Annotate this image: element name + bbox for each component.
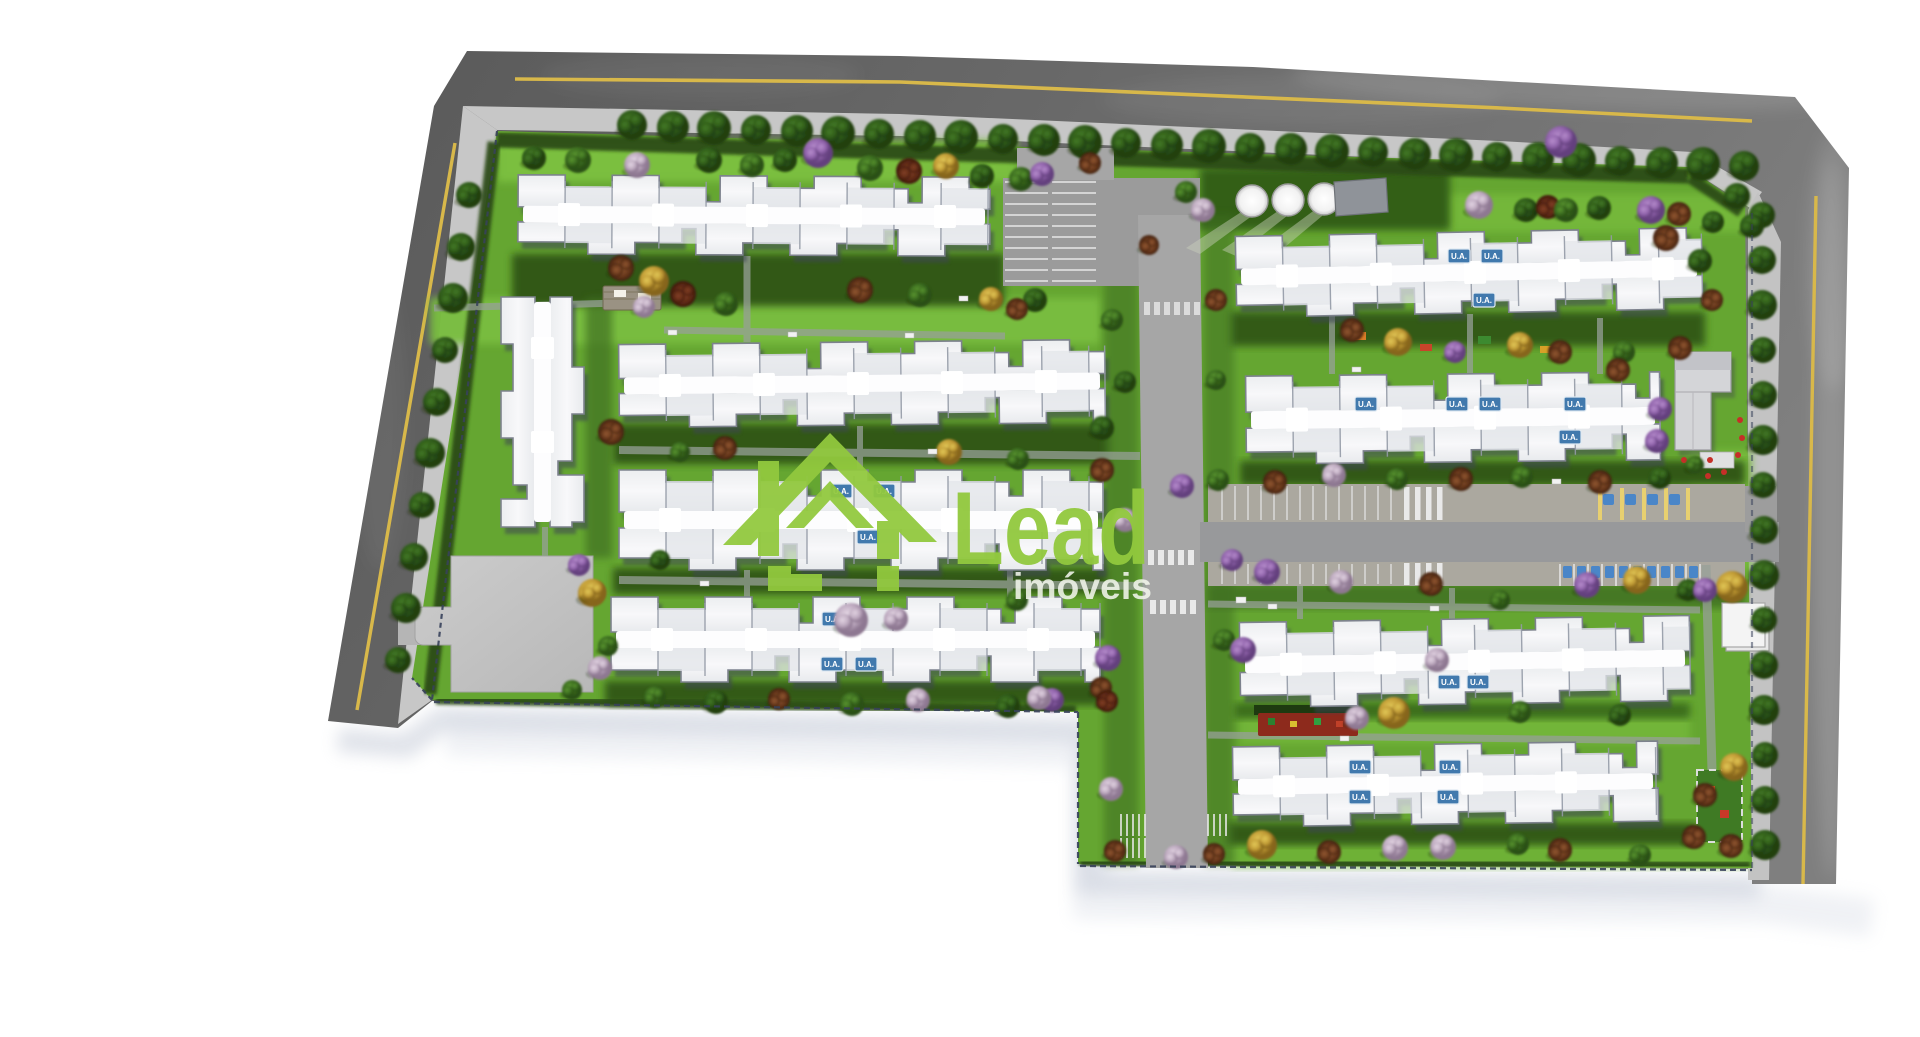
svg-text:U.A.: U.A.	[860, 533, 876, 542]
svg-text:U.A.: U.A.	[1476, 296, 1492, 305]
svg-text:U.A.: U.A.	[1470, 678, 1486, 687]
svg-text:U.A.: U.A.	[1442, 763, 1458, 772]
svg-text:U.A.: U.A.	[1482, 400, 1498, 409]
svg-text:U.A.: U.A.	[1441, 678, 1457, 687]
svg-text:U.A.: U.A.	[1484, 252, 1500, 261]
svg-text:U.A.: U.A.	[1440, 793, 1456, 802]
svg-text:U.A.: U.A.	[1449, 400, 1465, 409]
svg-text:U.A.: U.A.	[1562, 433, 1578, 442]
svg-text:U.A.: U.A.	[1567, 400, 1583, 409]
svg-text:imóveis: imóveis	[1013, 566, 1152, 607]
svg-text:U.A.: U.A.	[1352, 763, 1368, 772]
svg-text:U.A.: U.A.	[1358, 400, 1374, 409]
svg-text:U.A.: U.A.	[1352, 793, 1368, 802]
svg-text:U.A.: U.A.	[824, 660, 840, 669]
svg-text:U.A.: U.A.	[858, 660, 874, 669]
svg-text:U.A.: U.A.	[1451, 252, 1467, 261]
